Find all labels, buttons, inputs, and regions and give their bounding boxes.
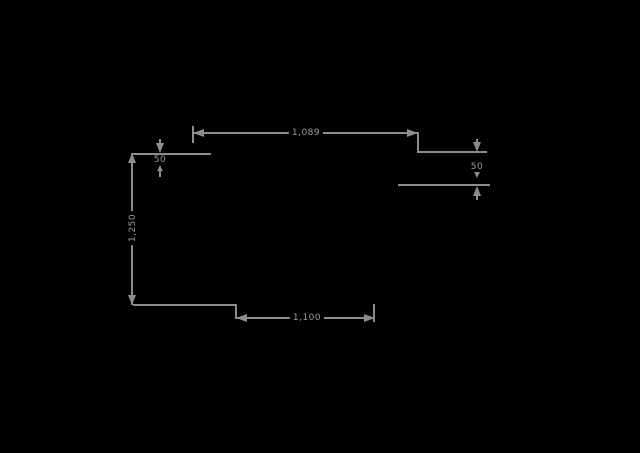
bottom-dimension-value: 1,100 — [290, 313, 324, 323]
right-offset-value: 50 — [468, 162, 486, 172]
arrow-left-icon — [236, 314, 247, 322]
left-reference-line — [133, 153, 211, 155]
bottom-left-line — [133, 304, 237, 306]
right-jog-line — [417, 132, 419, 153]
arrow-down-icon — [156, 143, 164, 153]
top-dimension-value: 1,089 — [289, 128, 323, 138]
arrow-down-small-icon — [474, 172, 480, 178]
left-offset-value: 50 — [151, 155, 169, 165]
left-offset-lower-arrow-stem — [159, 171, 161, 177]
right-offset-lower-arrow-stem — [476, 194, 478, 200]
left-dimension-value: 1,250 — [128, 211, 138, 245]
arrow-left-icon — [193, 129, 204, 137]
arrow-down-icon — [473, 142, 481, 152]
bottom-right-extension-line — [373, 304, 375, 322]
dimension-drawing: 1,089 50 50 1,250 1,100 — [0, 0, 640, 453]
arrow-up-icon — [128, 153, 136, 163]
